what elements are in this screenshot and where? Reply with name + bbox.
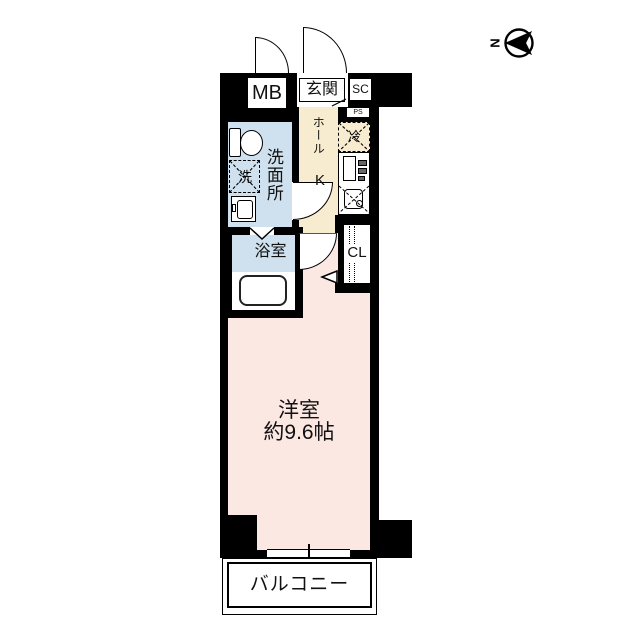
meter-box-label: MB: [252, 83, 282, 104]
pipe-space-box: PS: [346, 107, 370, 118]
shoe-closet-label: SC: [352, 83, 369, 96]
wall-bottom-right-segment: [350, 550, 370, 558]
hall-label: ホール: [311, 113, 325, 158]
balcony-inner: バルコニー: [227, 562, 372, 608]
entrance-box: 玄関: [299, 78, 345, 102]
wall-left: [220, 107, 228, 558]
shoe-closet-box: SC: [349, 78, 372, 101]
kitchen-faucet-part-2: [358, 168, 367, 174]
compass-circle: [506, 30, 533, 57]
compass-north-label: N: [488, 38, 503, 47]
wash-basin-bowl: [237, 200, 253, 219]
kitchen-stove-knob: [356, 200, 363, 207]
compass: N: [488, 30, 533, 57]
pipe-space-label: PS: [353, 109, 362, 116]
main-room-size: 約9.6帖: [228, 422, 370, 444]
bathroom-label: 浴室: [246, 243, 295, 262]
floor-plan: MB 玄関 SC PS バルコニー 洗面所 ホール K 洗 冷 浴室 CL 洋室…: [0, 0, 640, 640]
entrance-label: 玄関: [306, 82, 338, 99]
main-room-label: 洋室 約9.6帖: [228, 400, 370, 452]
kitchen-label: K: [311, 172, 329, 190]
refrigerator-label: 冷: [346, 128, 363, 145]
kitchen-sink-top: [343, 156, 356, 181]
kitchen-faucet-part-3: [358, 176, 365, 181]
washroom-label: 洗面所: [262, 144, 284, 206]
washing-machine-label: 洗: [236, 168, 254, 186]
pillar-bottom-right: [370, 520, 412, 558]
wall-right: [370, 107, 379, 558]
pillar-bottom-left: [220, 515, 257, 558]
wall-bathroom-bottom: [220, 310, 303, 318]
wall-bathroom-left: [220, 227, 232, 318]
toilet-bowl: [240, 130, 263, 156]
bathroom-door-gap: [250, 227, 274, 235]
meter-box-door-swing: [255, 37, 289, 73]
compass-needle: [506, 32, 531, 54]
wash-basin-faucet: [232, 204, 236, 212]
wall-washroom-hall-upper: [292, 107, 299, 182]
meter-box: MB: [246, 76, 288, 110]
balcony-label: バルコニー: [250, 575, 350, 595]
bathtub: [239, 275, 287, 306]
wall-cl-bottom: [335, 283, 372, 293]
kitchen-faucet-part-1: [358, 160, 367, 166]
main-room-name: 洋室: [228, 400, 370, 422]
closet-label: CL: [346, 244, 368, 262]
entrance-door-swing: [303, 27, 347, 73]
